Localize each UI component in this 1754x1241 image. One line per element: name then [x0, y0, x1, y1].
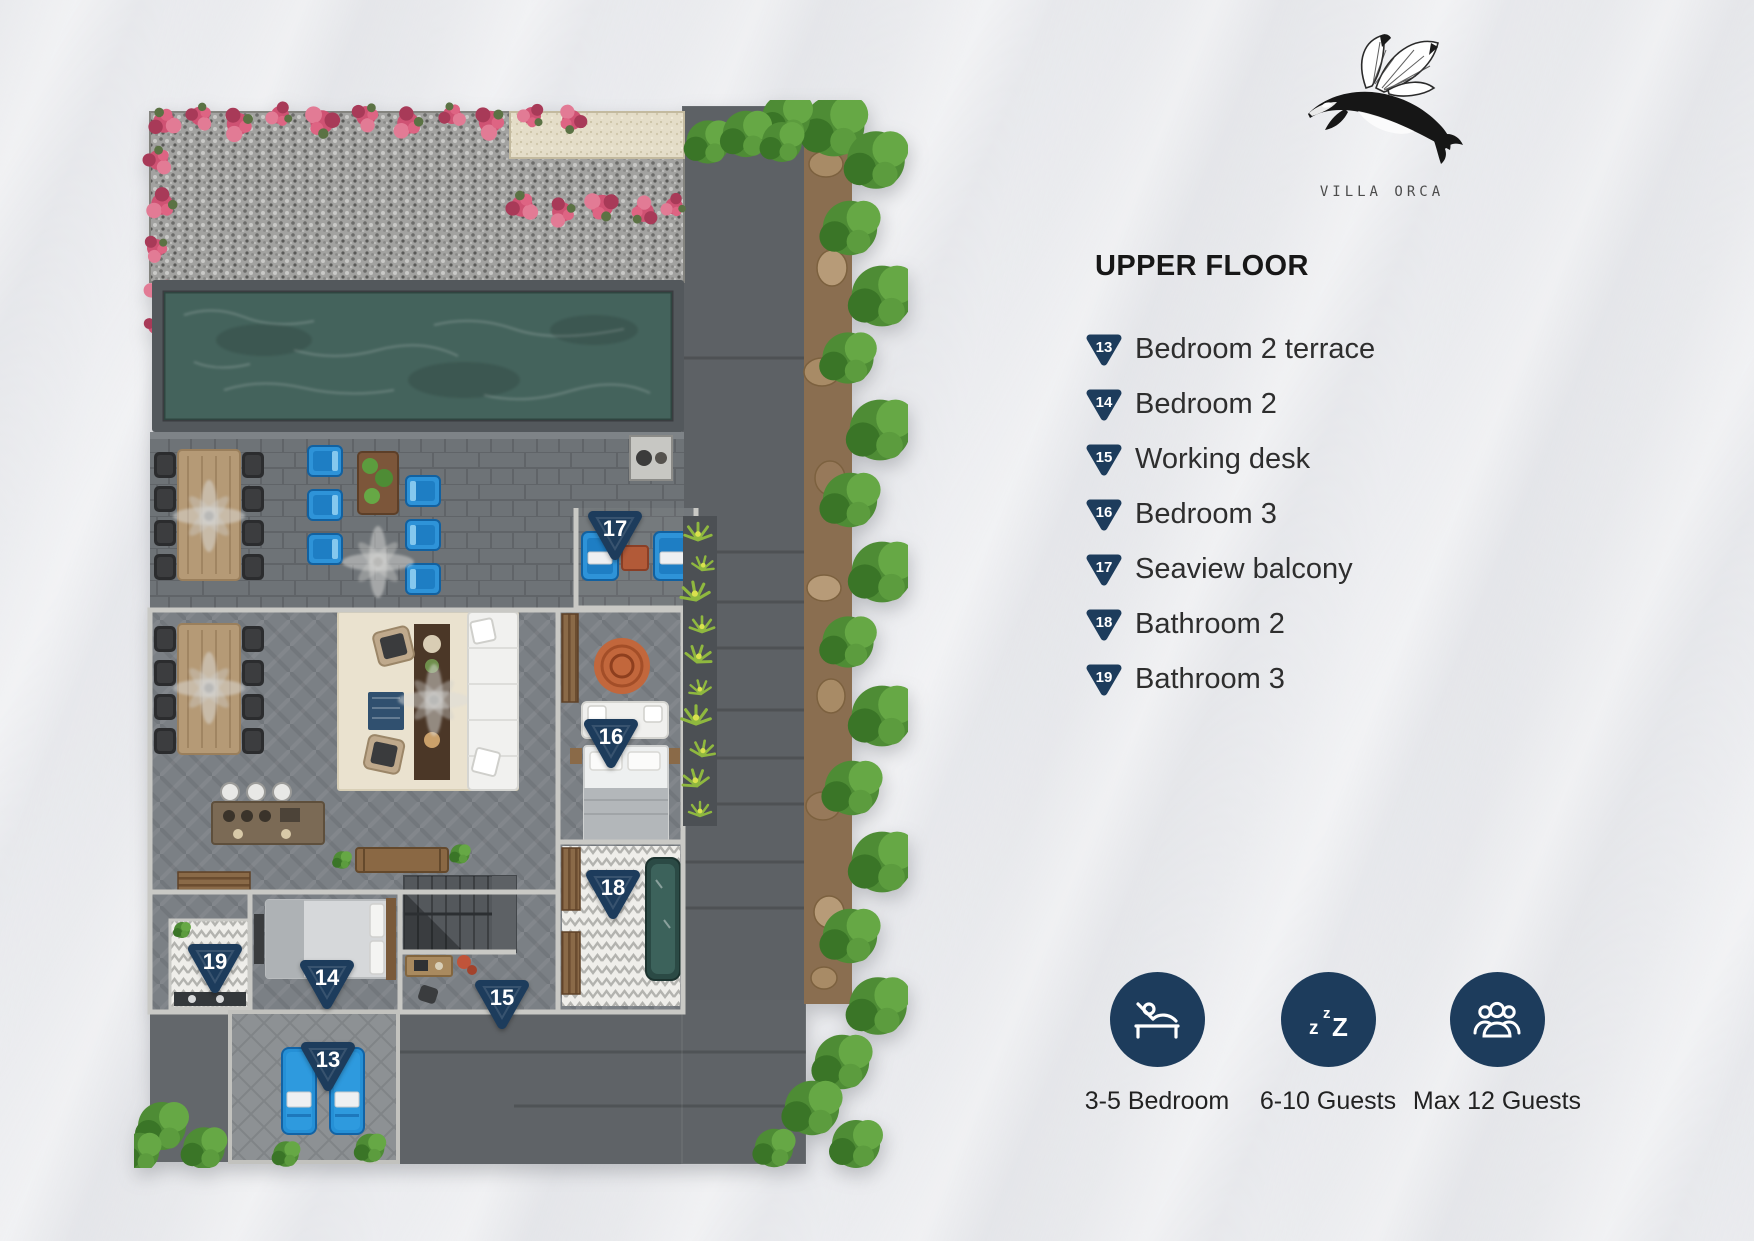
orca-icon	[1308, 92, 1463, 164]
stat-label: 3-5 Bedroom	[1057, 1087, 1257, 1116]
svg-text:14: 14	[315, 965, 340, 990]
svg-text:14: 14	[1096, 394, 1113, 411]
vanity	[174, 992, 246, 1006]
svg-text:17: 17	[603, 516, 627, 541]
legend-label: Seaview balcony	[1135, 553, 1353, 586]
marker-icon: 15	[1085, 442, 1123, 477]
legend-label: Bedroom 2 terrace	[1135, 333, 1375, 366]
balcony-table	[622, 546, 648, 570]
svg-text:z: z	[1309, 1018, 1319, 1039]
stat-bedrooms: 3-5 Bedroom	[1057, 972, 1257, 1116]
plant-bed	[679, 516, 717, 826]
svg-text:z: z	[1323, 1005, 1331, 1022]
svg-text:Z: Z	[1332, 1012, 1348, 1042]
page: { "brand": { "name": "VILLA ORCA" }, "pa…	[0, 0, 1754, 1241]
wardrobe	[562, 932, 580, 994]
orca-fin	[1325, 109, 1348, 130]
wardrobe	[562, 614, 578, 702]
stat-max-guests: Max 12 Guests	[1397, 972, 1597, 1116]
sofa	[468, 612, 518, 790]
brand-name: VILLA ORCA	[1294, 184, 1470, 200]
armchair	[363, 734, 405, 775]
svg-text:16: 16	[1096, 504, 1113, 521]
marker-icon: 14	[1085, 387, 1123, 422]
svg-text:15: 15	[490, 985, 514, 1010]
legend-label: Bedroom 2	[1135, 388, 1277, 421]
sleep-icon: z z Z	[1281, 972, 1376, 1067]
legend-label: Bathroom 3	[1135, 663, 1285, 696]
living-room	[338, 612, 518, 790]
legend-label: Bedroom 3	[1135, 498, 1277, 531]
legend-item-16: 16 Bedroom 3	[1085, 487, 1375, 542]
marker-icon: 13	[1085, 332, 1123, 367]
page-title: UPPER FLOOR	[1095, 250, 1309, 283]
svg-text:13: 13	[316, 1047, 340, 1072]
swimming-pool	[152, 280, 684, 432]
svg-text:15: 15	[1096, 449, 1113, 466]
villa-orca-logo	[1296, 28, 1468, 180]
armchair	[372, 625, 415, 667]
legend-item-18: 18 Bathroom 2	[1085, 597, 1375, 652]
svg-text:19: 19	[1096, 669, 1113, 686]
svg-text:17: 17	[1096, 559, 1113, 576]
wardrobe	[562, 848, 580, 910]
legend-item-13: 13 Bedroom 2 terrace	[1085, 322, 1375, 377]
deck-planter	[358, 452, 398, 514]
bed-icon	[1110, 972, 1205, 1067]
legend-label: Bathroom 2	[1135, 608, 1285, 641]
floor-plan: 17 16 18 19 14 15 13	[134, 100, 908, 1168]
staircase	[404, 876, 516, 952]
guests-icon	[1450, 972, 1545, 1067]
legend-item-19: 19 Bathroom 3	[1085, 652, 1375, 707]
marker-icon: 17	[1085, 552, 1123, 587]
svg-text:18: 18	[601, 875, 625, 900]
headboard	[386, 898, 396, 980]
svg-text:16: 16	[599, 724, 623, 749]
closet	[178, 872, 250, 890]
svg-text:18: 18	[1096, 614, 1113, 631]
legend-item-14: 14 Bedroom 2	[1085, 377, 1375, 432]
legend: 13 Bedroom 2 terrace 14 Bedroom 2 15 Wor…	[1085, 322, 1375, 707]
equipment-box	[630, 436, 672, 480]
bench	[254, 914, 264, 964]
legend-item-15: 15 Working desk	[1085, 432, 1375, 487]
stat-label: Max 12 Guests	[1397, 1087, 1597, 1116]
svg-text:13: 13	[1096, 339, 1113, 356]
marker-icon: 19	[1085, 662, 1123, 697]
svg-text:19: 19	[203, 949, 227, 974]
legend-item-17: 17 Seaview balcony	[1085, 542, 1375, 597]
marker-icon: 16	[1085, 497, 1123, 532]
marker-icon: 18	[1085, 607, 1123, 642]
bed	[570, 746, 680, 842]
legend-label: Working desk	[1135, 443, 1310, 476]
